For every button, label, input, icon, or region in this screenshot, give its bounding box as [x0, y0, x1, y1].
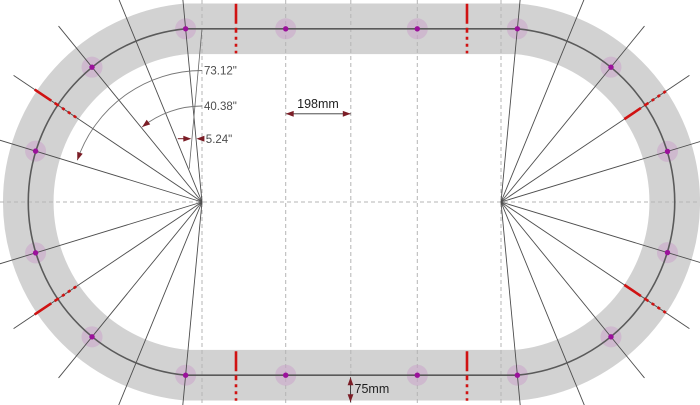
track-plan-svg[interactable]: 73.12"40.38"5.24"198mm75mm — [0, 0, 700, 405]
joint-dot[interactable] — [515, 373, 520, 378]
joint-dot[interactable] — [608, 334, 613, 339]
track-plan: 73.12"40.38"5.24"198mm75mm — [0, 0, 700, 405]
dimension-label: 40.38" — [204, 101, 237, 113]
dimension-arrowhead — [343, 111, 351, 117]
dimension-label: 5.24" — [206, 134, 232, 146]
joint-dot[interactable] — [283, 373, 288, 378]
joint-dot[interactable] — [515, 26, 520, 31]
dimension-label: 75mm — [355, 382, 390, 396]
joint-dot[interactable] — [608, 64, 613, 69]
dimension-arrowhead — [77, 152, 82, 161]
joint-dot[interactable] — [283, 26, 288, 31]
joint-dot[interactable] — [183, 373, 188, 378]
joint-dot[interactable] — [89, 64, 94, 69]
joint-dot[interactable] — [415, 373, 420, 378]
joint-dot[interactable] — [415, 26, 420, 31]
joint-dot[interactable] — [89, 334, 94, 339]
dimension-arrowhead — [142, 120, 150, 127]
dimension-arrowhead — [196, 136, 204, 142]
dimension-arrowhead — [286, 111, 294, 117]
joint-dot[interactable] — [33, 250, 38, 255]
dimension-label: 198mm — [297, 97, 339, 111]
dimension-arrowhead — [183, 136, 191, 142]
joint-dot[interactable] — [33, 148, 38, 153]
joint-dot[interactable] — [665, 149, 670, 154]
joint-dot[interactable] — [665, 250, 670, 255]
joint-dot[interactable] — [183, 26, 188, 31]
dimension-label: 73.12" — [204, 65, 237, 77]
